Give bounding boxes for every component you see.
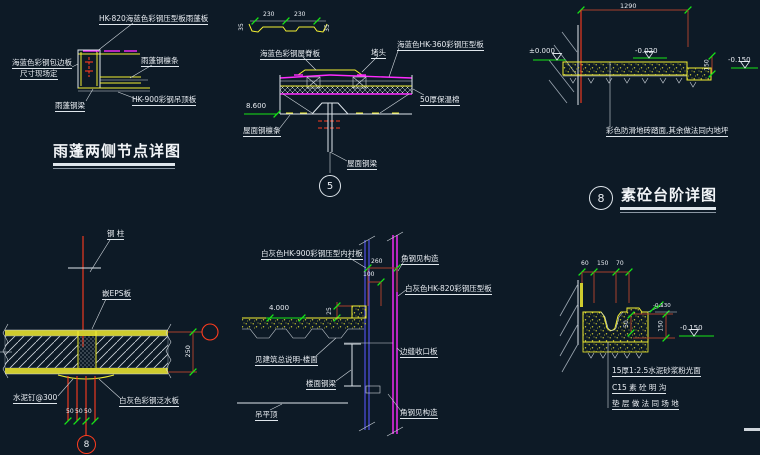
canopy-edge-label-line1: 海蓝色彩钢包边板 xyxy=(12,58,72,69)
panel-joint-linework xyxy=(0,236,218,436)
steps-dim-riser-150: 150 xyxy=(705,59,711,70)
canopy-ceiling-label: HK-900彩钢吊顶板 xyxy=(132,95,196,106)
ridge-dim-35-right: 35 xyxy=(325,24,331,32)
gutter-dim-60: 60 xyxy=(581,261,589,267)
canopy-detail-title: 雨蓬两侧节点详图 xyxy=(53,140,181,161)
floor-dim-100: 100 xyxy=(363,272,374,278)
joint-dim-250: 250 xyxy=(185,345,192,357)
cad-drawing-canvas[interactable]: HK-820海蓝色彩钢压型板雨蓬板 海蓝色彩钢包边板 尺寸现场定 雨蓬钢檩条 H… xyxy=(0,0,760,455)
joint-flashing-label: 白灰色彩钢泛水板 xyxy=(119,396,179,407)
joint-nails-label: 水泥钉@300 xyxy=(13,393,57,404)
ridge-panel-label: 海蓝色HK-360彩钢压型板 xyxy=(397,40,484,51)
canopy-title-underline-thin xyxy=(53,168,175,169)
steps-elev-mid: -0.020 xyxy=(635,48,658,55)
joint-eps-label: 嵌EPS板 xyxy=(102,289,131,300)
floor-closure-label: 边缝收口板 xyxy=(400,347,438,358)
joint-dim-50a: 50 xyxy=(66,409,74,415)
steps-detail-title: 素砼台阶详图 xyxy=(621,184,717,205)
gutter-elev-low: -0.150 xyxy=(680,325,703,332)
canopy-purlin-label: 雨蓬钢檩条 xyxy=(141,56,179,67)
floor-elevation-4000: 4.000 xyxy=(269,305,289,312)
ridge-dim-230-right: 230 xyxy=(294,12,305,18)
steps-note: 彩色防滑地砖踏面,其余做法同内地坪 xyxy=(606,126,728,137)
ridge-insulation-label: 50厚保温棉 xyxy=(420,95,460,106)
floor-angle-top-label: 角钢见构造 xyxy=(401,254,439,265)
floor-ceiling-label: 吊平顶 xyxy=(255,410,278,421)
joint-dim-50c: 50 xyxy=(84,409,92,415)
floor-panel-label: 白灰色HK-820彩钢压型板 xyxy=(405,284,492,295)
gutter-note-line3: 垫 层 做 法 同 场 地 xyxy=(612,399,679,410)
joint-column-label: 钢 柱 xyxy=(107,229,124,240)
canopy-panel-label: HK-820海蓝色彩钢压型板雨蓬板 xyxy=(99,14,208,25)
floor-spec-note-label: 见建筑总说明-楼面 xyxy=(255,355,318,366)
gutter-dim-70: 70 xyxy=(616,261,624,267)
floor-beam-label: 楼面钢梁 xyxy=(306,379,336,390)
floor-angle-bottom-label: 角钢见构造 xyxy=(400,408,438,419)
floor-dim-25: 25 xyxy=(327,307,333,315)
canopy-detail-linework xyxy=(72,23,152,101)
joint-dim-50b: 50 xyxy=(75,409,83,415)
steps-detail-number-bubble: 8 xyxy=(589,186,613,210)
ridge-dim-230-left: 230 xyxy=(263,12,274,18)
ridge-purlin-label: 屋面钢檩条 xyxy=(243,126,281,137)
gutter-note-line1: 15厚1:2.5水泥砂浆粉光面 xyxy=(612,366,701,377)
floor-liner-label: 白灰色HK-900彩钢压型内衬板 xyxy=(261,249,363,260)
gutter-dim-depth-150: 150 xyxy=(659,320,665,331)
steps-detail-linework xyxy=(533,7,758,127)
ridge-plug-label: 堵头 xyxy=(371,48,386,59)
steps-elev-zero: ±0.000 xyxy=(529,48,555,55)
ridge-elevation-8600: 8.600 xyxy=(246,103,266,110)
ridge-dim-35-left: 35 xyxy=(239,23,245,31)
steps-dim-1290: 1290 xyxy=(620,3,637,10)
gutter-dim-50: 50 xyxy=(624,320,630,328)
ridge-detail-number-bubble: 5 xyxy=(319,175,341,197)
ridge-cap-label: 海蓝色彩钢屋脊板 xyxy=(260,49,320,60)
gutter-elev-small: -0.130 xyxy=(653,304,671,310)
steps-title-underline-thin xyxy=(620,212,716,213)
steps-title-underline xyxy=(620,207,716,210)
floor-dim-260: 260 xyxy=(371,259,382,265)
joint-axis-bubble: 8 xyxy=(77,435,96,454)
gutter-note-line2: C15 素 砼 明 沟 xyxy=(612,383,666,394)
canopy-title-underline xyxy=(53,163,175,166)
canopy-edge-label-line2: 尺寸现场定 xyxy=(20,69,58,80)
gutter-dim-150: 150 xyxy=(597,261,608,267)
ridge-beam-label: 屋面钢梁 xyxy=(347,159,377,170)
canopy-beam-label: 雨蓬钢梁 xyxy=(55,101,85,112)
steps-elev-low: -0.150 xyxy=(728,57,751,64)
